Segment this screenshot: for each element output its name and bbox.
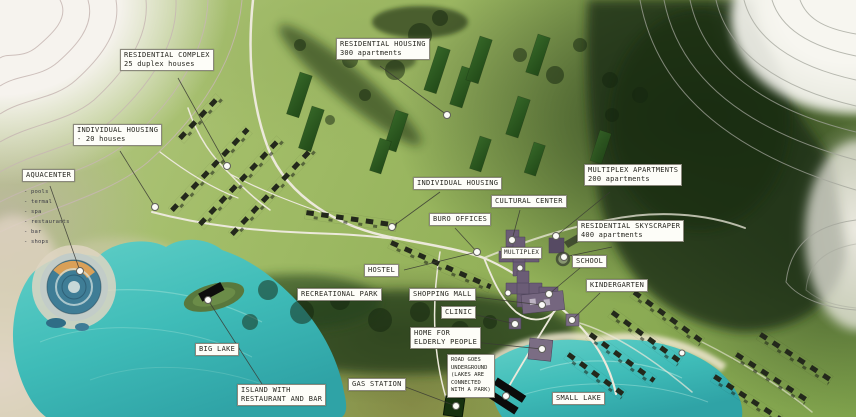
label-title: HOME FOR xyxy=(414,329,477,338)
label-title: ELDERLY PEOPLE xyxy=(414,338,477,347)
note-line: (LAKES ARE xyxy=(451,372,491,380)
label-multiplex: MULTIPLEX xyxy=(501,247,542,259)
label-cultural-center: CULTURAL CENTER xyxy=(491,195,567,208)
label-subtitle: 400 apartments xyxy=(581,231,680,240)
label-hostel: HOSTEL xyxy=(364,264,399,277)
note-line: ROAD GOES xyxy=(451,357,491,365)
label-island-restaurant: ISLAND WITH RESTAURANT AND BAR xyxy=(237,384,326,406)
label-title: RESTAURANT AND BAR xyxy=(241,395,322,404)
aquacenter-item: - termal xyxy=(24,197,70,207)
label-residential-housing: RESIDENTIAL HOUSING 300 apartments xyxy=(336,38,430,60)
label-residential-skyscraper: RESIDENTIAL SKYSCRAPER 400 apartments xyxy=(577,220,684,242)
label-individual-housing-nw: INDIVIDUAL HOUSING - 20 houses xyxy=(73,124,162,146)
residential-skyscraper-building xyxy=(549,238,564,253)
label-shopping-mall: SHOPPING MALL xyxy=(409,288,476,301)
label-title: ISLAND WITH xyxy=(241,386,322,395)
aquacenter-item: - spa xyxy=(24,207,70,217)
label-clinic: CLINIC xyxy=(441,306,476,319)
label-title: INDIVIDUAL HOUSING xyxy=(77,126,158,135)
label-multiplex-apartments: MULTIPLEX APARTMENTS 200 apartments xyxy=(584,164,682,186)
aquacenter-item: - restaurants xyxy=(24,217,70,227)
label-subtitle: 200 apartments xyxy=(588,175,678,184)
label-home-for-elderly: HOME FOR ELDERLY PEOPLE xyxy=(410,327,481,349)
aquacenter-feature-list: - pools - termal - spa - restaurants - b… xyxy=(24,187,70,247)
label-title: RESIDENTIAL COMPLEX xyxy=(124,51,210,60)
label-buro-offices: BURO OFFICES xyxy=(429,213,491,226)
aquacenter-item: - pools xyxy=(24,187,70,197)
masterplan-map: RESIDENTIAL COMPLEX 25 duplex houses RES… xyxy=(0,0,856,417)
label-subtitle: - 20 houses xyxy=(77,135,158,144)
label-small-lake: SMALL LAKE xyxy=(552,392,605,405)
label-aquacenter: AQUACENTER xyxy=(22,169,75,182)
note-line: CONNECTED xyxy=(451,380,491,388)
aquacenter-item: - shops xyxy=(24,237,70,247)
label-title: RESIDENTIAL HOUSING xyxy=(340,40,426,49)
label-subtitle: 300 apartments xyxy=(340,49,426,58)
label-individual-housing-center: INDIVIDUAL HOUSING xyxy=(413,177,502,190)
label-subtitle: 25 duplex houses xyxy=(124,60,210,69)
label-big-lake: BIG LAKE xyxy=(195,343,239,356)
label-title: RESIDENTIAL SKYSCRAPER xyxy=(581,222,680,231)
label-kindergarten: KINDERGARTEN xyxy=(586,279,648,292)
label-residential-complex: RESIDENTIAL COMPLEX 25 duplex houses xyxy=(120,49,214,71)
note-line: WITH A PARK) xyxy=(451,387,491,395)
label-recreational-park: RECREATIONAL PARK xyxy=(297,288,382,301)
note-line: UNDERGROUND xyxy=(451,365,491,373)
aquacenter-item: - bar xyxy=(24,227,70,237)
label-title: MULTIPLEX APARTMENTS xyxy=(588,166,678,175)
label-road-note: ROAD GOES UNDERGROUND (LAKES ARE CONNECT… xyxy=(447,354,495,398)
label-gas-station: GAS STATION xyxy=(348,378,406,391)
label-school: SCHOOL xyxy=(572,255,607,268)
